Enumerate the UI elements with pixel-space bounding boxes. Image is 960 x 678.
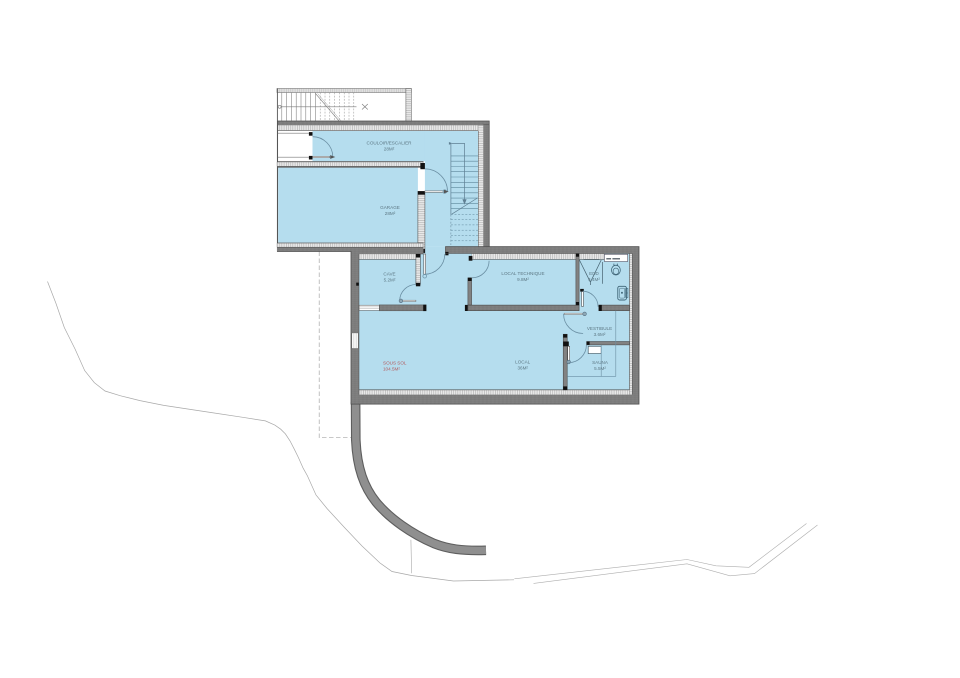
svg-text:CAVE: CAVE bbox=[383, 272, 395, 277]
svg-text:LOCAL TECHNIQUE: LOCAL TECHNIQUE bbox=[501, 271, 544, 276]
svg-text:28M²: 28M² bbox=[385, 211, 396, 216]
svg-text:5.5M²: 5.5M² bbox=[594, 366, 606, 371]
svg-text:4.4M²: 4.4M² bbox=[588, 277, 600, 282]
svg-text:36M²: 36M² bbox=[517, 366, 528, 371]
svg-text:GARAGE: GARAGE bbox=[380, 205, 400, 210]
svg-text:5.2M²: 5.2M² bbox=[384, 278, 396, 283]
svg-text:SAUNA: SAUNA bbox=[592, 360, 609, 365]
svg-text:LOCAL: LOCAL bbox=[515, 360, 531, 365]
svg-text:COULOIR/ESCALIER: COULOIR/ESCALIER bbox=[367, 141, 413, 146]
svg-text:EDD: EDD bbox=[589, 271, 599, 276]
svg-text:3.6M²: 3.6M² bbox=[594, 332, 606, 337]
svg-text:28M²: 28M² bbox=[384, 147, 395, 152]
svg-text:VESTIBULE: VESTIBULE bbox=[587, 326, 612, 331]
svg-text:9.8M²: 9.8M² bbox=[517, 277, 529, 282]
svg-text:104.5M²: 104.5M² bbox=[383, 367, 400, 372]
svg-text:SOUS SOL: SOUS SOL bbox=[383, 361, 407, 366]
